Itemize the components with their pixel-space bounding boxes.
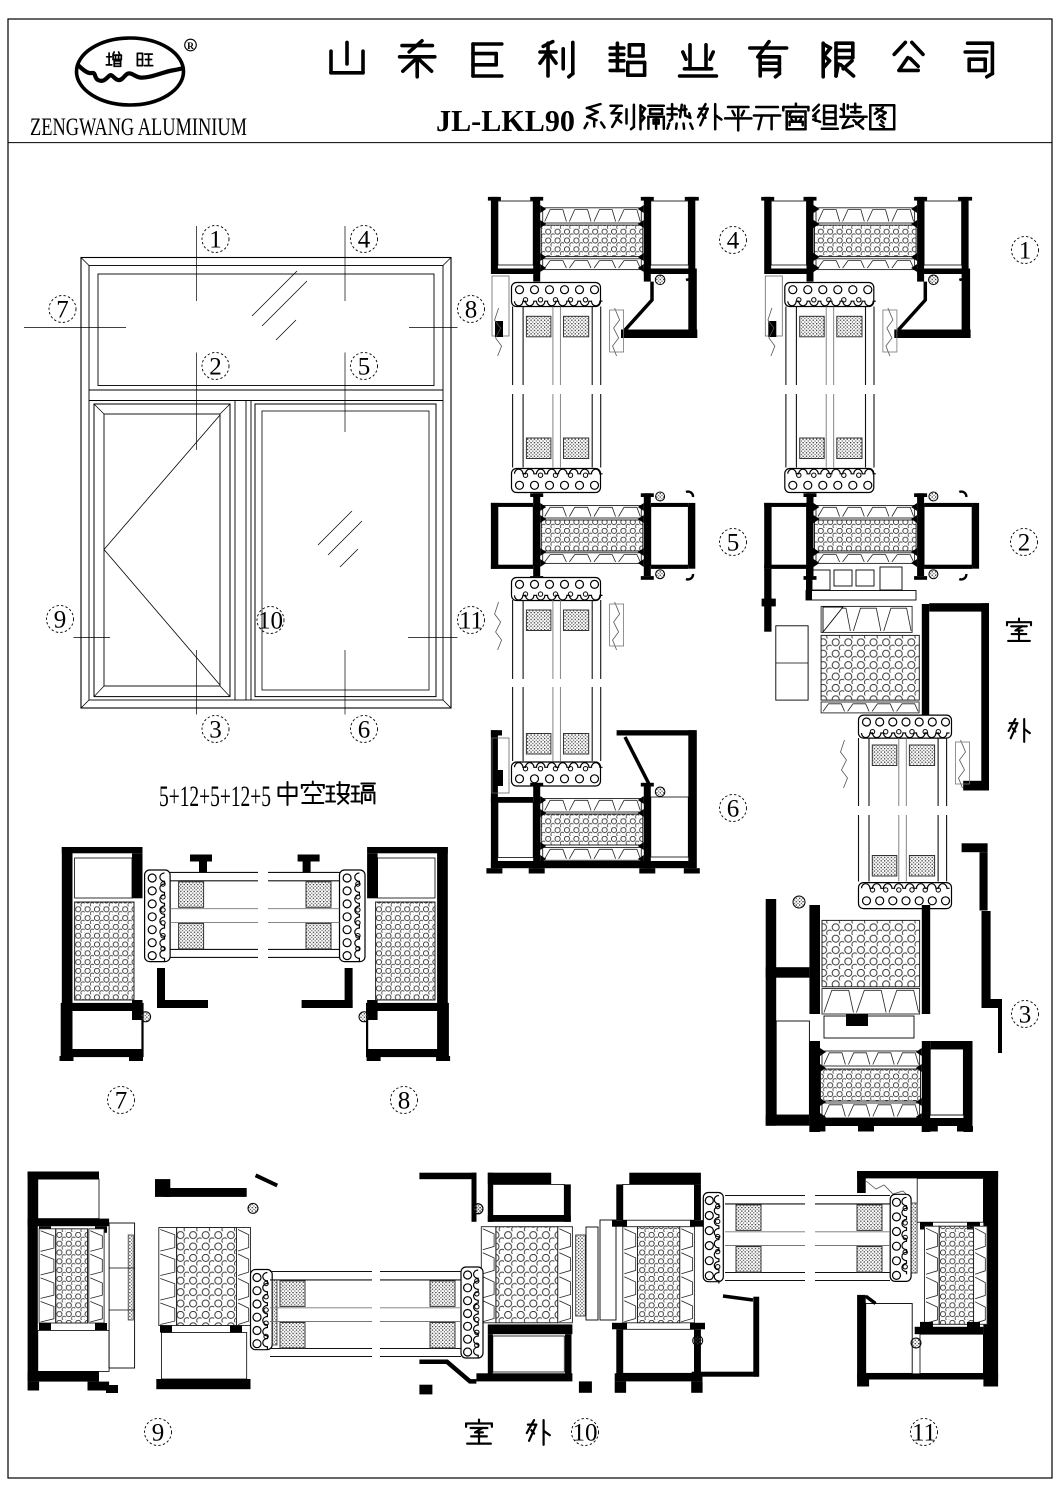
svg-text:6: 6 <box>358 717 371 744</box>
svg-text:4: 4 <box>727 228 740 255</box>
svg-text:9: 9 <box>152 1420 165 1447</box>
svg-text:7: 7 <box>115 1088 128 1115</box>
svg-text:3: 3 <box>1019 1002 1032 1029</box>
svg-text:5+12+5+12+5: 5+12+5+12+5 <box>159 780 271 813</box>
svg-text:1: 1 <box>209 227 222 254</box>
svg-text:9: 9 <box>54 607 67 634</box>
svg-text:11: 11 <box>912 1420 936 1447</box>
svg-text:ZENGWANG ALUMINIUM: ZENGWANG ALUMINIUM <box>30 114 247 141</box>
svg-text:3: 3 <box>209 717 222 744</box>
svg-text:4: 4 <box>358 227 371 254</box>
svg-text:10: 10 <box>573 1420 598 1447</box>
svg-text:8: 8 <box>465 297 478 324</box>
svg-text:10: 10 <box>258 608 283 635</box>
svg-text:R: R <box>187 42 194 52</box>
svg-text:5: 5 <box>727 530 740 557</box>
svg-text:2: 2 <box>1018 530 1031 557</box>
svg-text:6: 6 <box>727 796 740 823</box>
svg-text:11: 11 <box>459 608 483 635</box>
svg-text:8: 8 <box>398 1088 411 1115</box>
svg-text:JL-LKL90: JL-LKL90 <box>436 103 575 138</box>
svg-text:1: 1 <box>1019 238 1032 265</box>
svg-text:7: 7 <box>56 297 69 324</box>
svg-text:5: 5 <box>358 354 371 381</box>
svg-text:2: 2 <box>209 354 222 381</box>
